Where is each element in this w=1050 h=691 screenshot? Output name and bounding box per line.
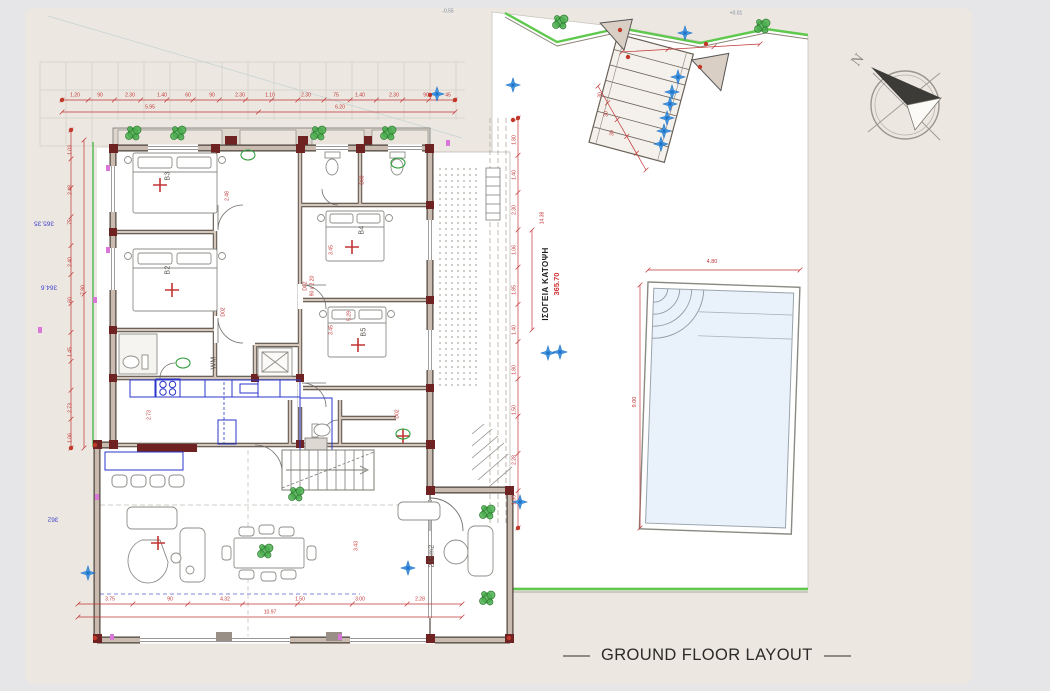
survey-dot	[69, 446, 73, 450]
veranda-tiling	[437, 166, 481, 388]
survey-dot	[453, 98, 457, 102]
survey-dot	[93, 443, 97, 447]
survey-dot	[516, 526, 520, 530]
plant-symbol	[289, 487, 305, 501]
opening-mark	[93, 297, 97, 303]
floor-plan-screenshot: 4.80 9.00 N 1.20902.301.4060902.301.102.…	[0, 0, 1050, 691]
survey-dot	[516, 116, 520, 120]
plan-elevation-label: 365.70	[552, 273, 561, 296]
survey-dot	[507, 636, 511, 640]
plan-caption: ΙΣΟΓΕΙΑ ΚΑΤΟΨΗ 365.70	[541, 228, 565, 340]
opening-mark	[338, 634, 342, 640]
plant-symbol	[755, 19, 771, 33]
compass-icon	[868, 67, 941, 140]
opening-mark	[106, 247, 110, 253]
survey-dot	[93, 636, 97, 640]
survey-star-icon	[430, 87, 444, 101]
plant-symbol	[480, 591, 496, 605]
plant-symbol	[171, 126, 187, 140]
plant-symbol	[553, 15, 569, 29]
survey-dot	[428, 93, 432, 97]
title-dash-left	[563, 655, 590, 657]
survey-dot	[511, 118, 515, 122]
plant-symbol	[258, 544, 274, 558]
plant-symbol	[480, 505, 496, 519]
survey-dot	[618, 28, 622, 32]
survey-dot	[698, 65, 702, 69]
pool	[639, 282, 800, 534]
opening-mark	[106, 165, 110, 171]
drawing-title: GROUND FLOOR LAYOUT	[601, 646, 813, 665]
site-grid	[40, 16, 465, 146]
drawing-title-block: GROUND FLOOR LAYOUT	[563, 646, 851, 665]
opening-mark	[38, 327, 42, 333]
opening-mark	[110, 634, 114, 640]
plant-symbol	[126, 126, 142, 140]
survey-dot	[704, 42, 708, 46]
opening-mark	[446, 140, 450, 146]
opening-mark	[95, 494, 99, 500]
title-dash-right	[824, 655, 851, 657]
plant-symbol	[381, 126, 397, 140]
survey-dot	[69, 128, 73, 132]
floor-plan-drawing	[0, 0, 1050, 691]
plant-symbol	[311, 126, 327, 140]
plan-caption-greek: ΙΣΟΓΕΙΑ ΚΑΤΟΨΗ	[541, 247, 550, 320]
survey-dot	[60, 98, 64, 102]
survey-star-icon	[81, 566, 95, 580]
survey-dot	[626, 55, 630, 59]
